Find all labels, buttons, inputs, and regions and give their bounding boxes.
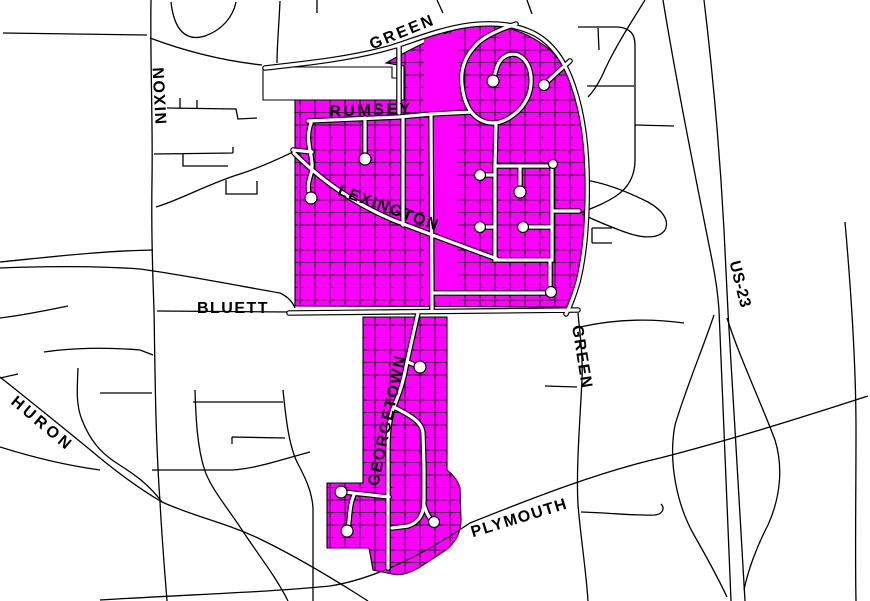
cul-de-sac-bulb	[518, 222, 529, 233]
map-canvas[interactable]: GREEN RUMSEY LEXINGTON NIXON BLUETT GEOR…	[0, 0, 870, 601]
excluded-parcel	[263, 67, 399, 100]
cul-de-sac-bulb	[546, 287, 557, 298]
cul-de-sac-bulb	[549, 160, 558, 169]
cul-de-sac-bulb	[341, 525, 353, 537]
map-window: GREEN RUMSEY LEXINGTON NIXON BLUETT GEOR…	[0, 0, 870, 601]
cul-de-sac-bulb	[305, 192, 317, 204]
cul-de-sac-bulb	[414, 361, 426, 373]
cul-de-sac-bulb	[429, 517, 440, 528]
cul-de-sac-bulb	[475, 222, 486, 233]
cul-de-sac-bulb	[475, 170, 486, 181]
street-label-rumsey: RUMSEY	[329, 101, 413, 121]
cul-de-sac-bulb	[359, 153, 371, 165]
street-label-nixon: NIXON	[150, 65, 170, 124]
cul-de-sac-bulb	[514, 186, 526, 198]
street-label-bluett: BLUETT	[197, 300, 269, 317]
cul-de-sac-bulb	[539, 80, 550, 91]
cul-de-sac-bulb	[335, 486, 347, 498]
cul-de-sac-bulb	[487, 75, 499, 87]
